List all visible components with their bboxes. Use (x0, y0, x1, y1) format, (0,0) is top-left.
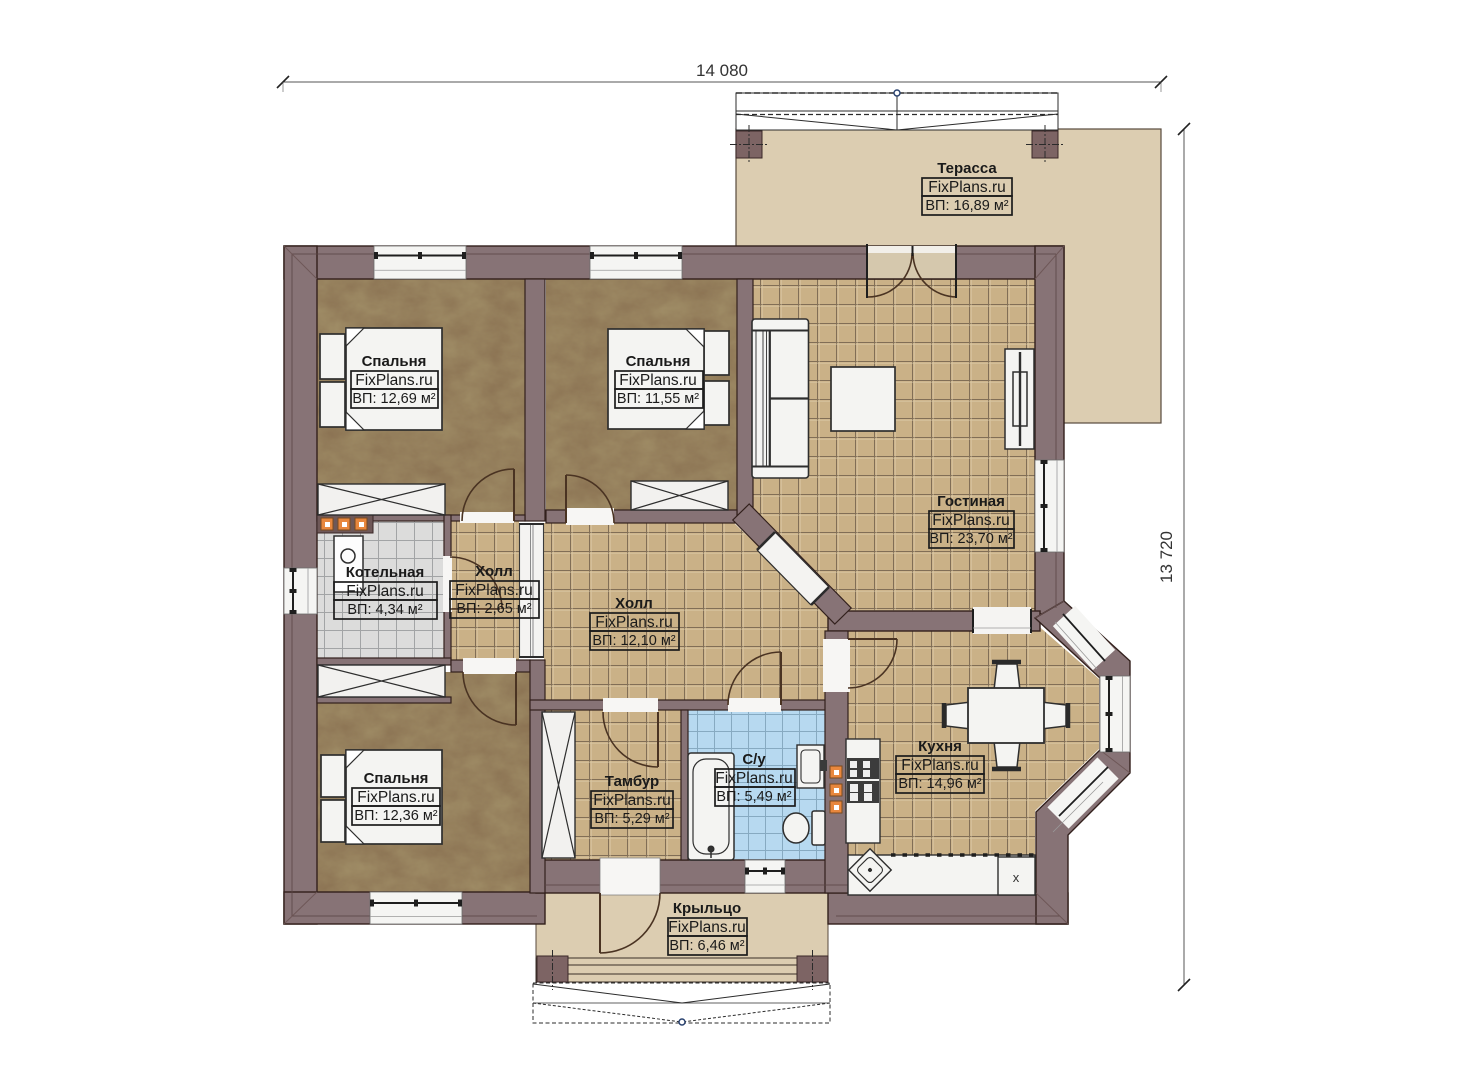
svg-text:Спальня: Спальня (362, 353, 427, 370)
svg-text:FixPlans.ru: FixPlans.ru (593, 792, 671, 809)
svg-text:ВП: 16,89 м²: ВП: 16,89 м² (925, 198, 1008, 214)
svg-text:ВП: 14,96 м²: ВП: 14,96 м² (898, 776, 981, 792)
svg-text:ВП: 11,55 м²: ВП: 11,55 м² (617, 391, 699, 407)
svg-text:ВП: 5,49 м²: ВП: 5,49 м² (716, 789, 791, 805)
svg-text:ВП: 12,10 м²: ВП: 12,10 м² (592, 633, 675, 649)
svg-text:Спальня: Спальня (626, 353, 691, 370)
svg-text:FixPlans.ru: FixPlans.ru (595, 614, 673, 631)
svg-text:FixPlans.ru: FixPlans.ru (928, 179, 1006, 196)
svg-text:ВП: 5,29 м²: ВП: 5,29 м² (594, 811, 669, 827)
svg-text:ВП: 12,36 м²: ВП: 12,36 м² (354, 808, 437, 824)
svg-text:FixPlans.ru: FixPlans.ru (619, 372, 697, 389)
svg-text:Холл: Холл (475, 563, 513, 580)
svg-text:ВП: 12,69 м²: ВП: 12,69 м² (352, 391, 435, 407)
svg-text:Гостиная: Гостиная (937, 493, 1005, 510)
svg-text:Тамбур: Тамбур (605, 773, 659, 790)
svg-text:x: x (1013, 870, 1020, 885)
svg-text:FixPlans.ru: FixPlans.ru (668, 919, 746, 936)
svg-text:FixPlans.ru: FixPlans.ru (932, 512, 1010, 529)
svg-text:ВП: 23,70 м²: ВП: 23,70 м² (929, 531, 1012, 547)
svg-text:14 080: 14 080 (696, 61, 748, 80)
svg-text:FixPlans.ru: FixPlans.ru (357, 789, 435, 806)
svg-text:FixPlans.ru: FixPlans.ru (455, 582, 533, 599)
svg-text:13 720: 13 720 (1157, 531, 1176, 583)
svg-text:ВП: 4,34 м²: ВП: 4,34 м² (347, 602, 422, 618)
svg-text:ВП: 6,46 м²: ВП: 6,46 м² (669, 938, 744, 954)
svg-text:FixPlans.ru: FixPlans.ru (346, 583, 424, 600)
svg-text:FixPlans.ru: FixPlans.ru (355, 372, 433, 389)
svg-text:Холл: Холл (615, 595, 653, 612)
svg-text:Спальня: Спальня (364, 770, 429, 787)
svg-text:ВП: 2,65 м²: ВП: 2,65 м² (456, 601, 531, 617)
svg-text:FixPlans.ru: FixPlans.ru (901, 757, 979, 774)
svg-text:С/у: С/у (742, 751, 766, 768)
svg-text:Котельная: Котельная (346, 564, 425, 581)
svg-text:Терасса: Терасса (937, 160, 997, 177)
svg-text:Кухня: Кухня (918, 738, 962, 755)
svg-text:FixPlans.ru: FixPlans.ru (715, 770, 793, 787)
svg-text:Крыльцо: Крыльцо (673, 900, 741, 917)
